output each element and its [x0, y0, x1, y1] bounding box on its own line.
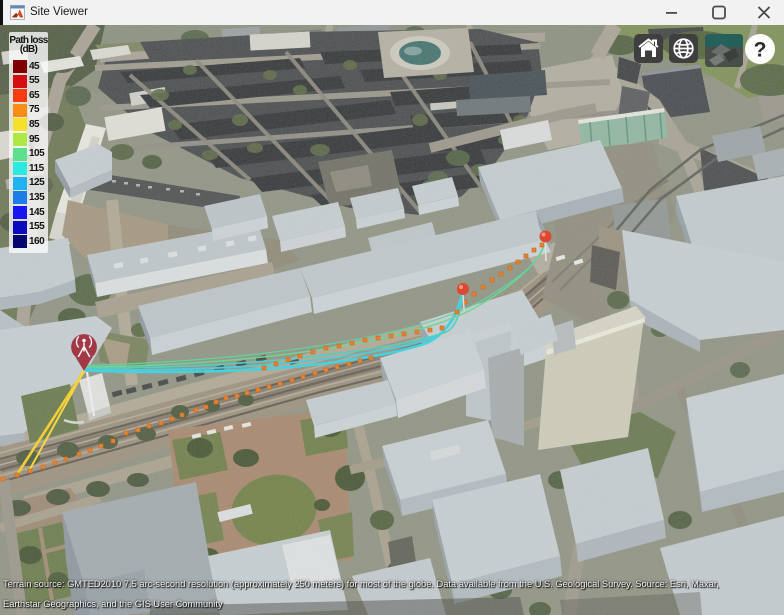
svg-text:?: ?: [754, 39, 767, 62]
